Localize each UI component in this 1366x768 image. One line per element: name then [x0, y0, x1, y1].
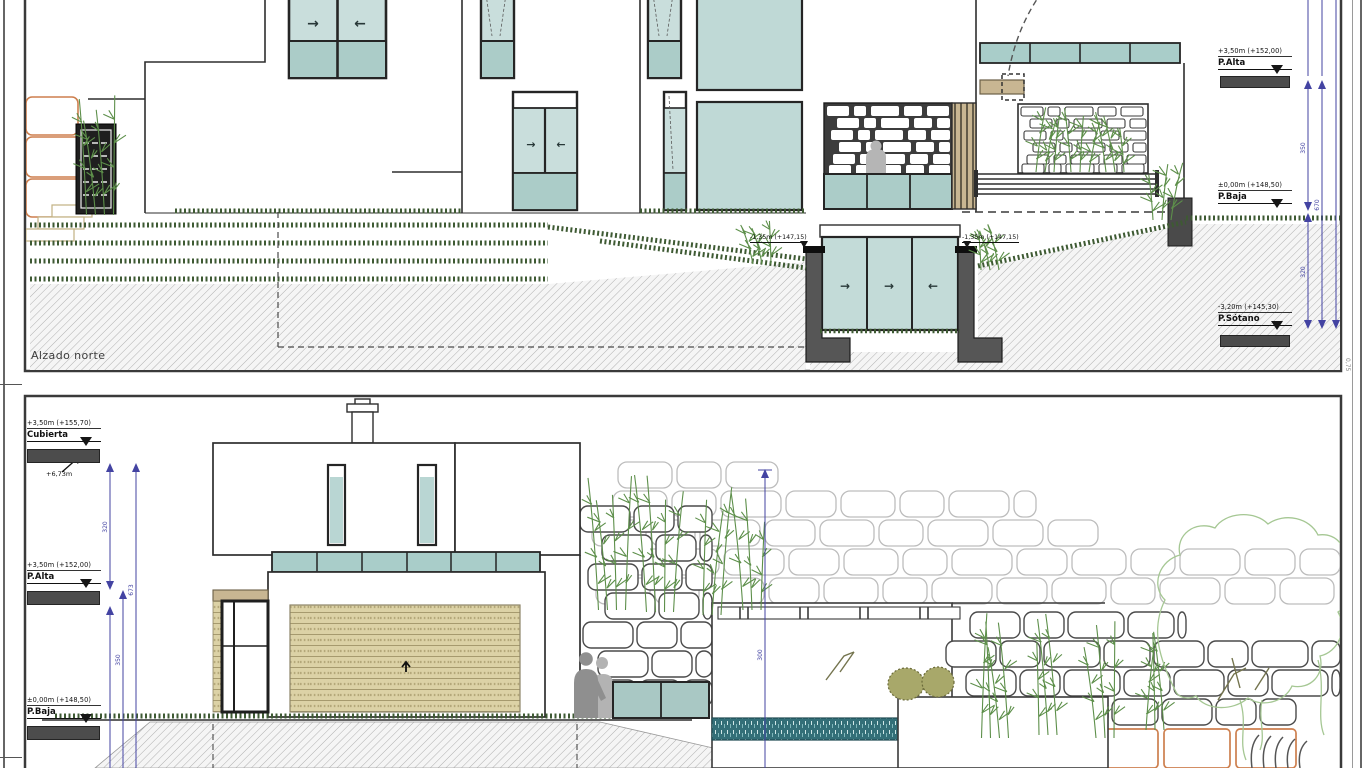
level-arrow-icon — [1271, 65, 1283, 74]
concrete-retainer-right — [1168, 198, 1192, 246]
window-large-left: → ← — [289, 0, 386, 78]
level-label-palta-bottom: +3,50m (+152,00) P.Alta — [27, 561, 101, 584]
slide-right-icon: → — [526, 138, 535, 151]
level-arrow-icon — [1271, 321, 1283, 330]
garage-door — [290, 605, 520, 712]
dim-total: 673 — [128, 584, 135, 596]
dim-basement: 320 — [1300, 266, 1307, 278]
sheet-edge-right — [1360, 0, 1362, 768]
slab-bar — [27, 726, 100, 740]
level-elevation: ±0,00m (+148,50) — [27, 696, 101, 706]
margin-tick — [0, 757, 22, 758]
slab-bar — [1220, 335, 1290, 347]
dim-total: 670 — [1314, 199, 1321, 211]
glazed-panels — [697, 0, 802, 210]
level-name: P.Sótano — [1218, 314, 1260, 324]
level-elevation: ±0,00m (+148,50) — [1218, 181, 1292, 191]
level-elevation: -3,20m (+145,30) — [1218, 303, 1292, 313]
drawing-title: Alzado norte — [31, 349, 105, 362]
slab-bar — [27, 591, 100, 605]
window-slot — [664, 92, 686, 210]
slide-left-icon: ← — [928, 279, 938, 293]
slab-bar — [1220, 76, 1290, 88]
spot-arrow-icon — [963, 241, 971, 248]
sheet-artwork: → ← → ← — [0, 0, 1366, 768]
level-arrow-icon — [80, 714, 92, 723]
window-narrow-2 — [648, 0, 681, 78]
slide-right-icon: → — [307, 16, 319, 32]
level-name: P.Baja — [27, 707, 56, 717]
level-name: P.Alta — [27, 572, 54, 582]
porch-lintel — [213, 590, 268, 601]
dim-upper: 320 — [102, 521, 109, 533]
margin-tick — [0, 384, 22, 385]
spot-level-patio-left: -1,35m (+147,15) — [750, 234, 807, 243]
wall-railing — [718, 607, 960, 619]
dim-floor-to-floor: 350 — [1300, 142, 1307, 154]
level-elevation: +3,50m (+152,00) — [1218, 47, 1292, 57]
window-narrow-1 — [481, 0, 514, 78]
height-note: +6,73m — [46, 470, 72, 478]
level-label-pbaja-bottom: ±0,00m (+148,50) P.Baja — [27, 696, 101, 719]
slab-bar — [27, 449, 100, 463]
level-label-pbaja-top: ±0,00m (+148,50) P.Baja — [1218, 181, 1292, 204]
margin-line — [1352, 0, 1353, 768]
slot-window-1 — [328, 465, 345, 545]
dim-garden-wall: 300 — [757, 649, 764, 661]
stone-wall-center — [824, 103, 976, 209]
slide-left-icon: ← — [556, 138, 565, 151]
level-label-psotano-top: -3,20m (+145,30) P.Sótano — [1218, 303, 1292, 326]
level-arrow-icon — [80, 579, 92, 588]
level-arrow-icon — [1271, 199, 1283, 208]
level-name: P.Baja — [1218, 192, 1247, 202]
wood-slat-screen — [952, 103, 976, 209]
level-elevation: +3,50m (+152,00) — [27, 561, 101, 571]
slide-right-icon: → — [840, 279, 850, 293]
level-label-cubierta: +3,50m (+155,70) Cubierta — [27, 419, 101, 442]
dim-lower: 350 — [115, 654, 122, 666]
level-arrow-icon — [80, 437, 92, 446]
spot-arrow-icon — [800, 241, 808, 248]
entry-door — [222, 601, 268, 712]
level-elevation: +3,50m (+155,70) — [27, 419, 101, 429]
slot-window-2 — [418, 465, 436, 545]
chimney — [347, 404, 378, 412]
planter-box — [898, 697, 1108, 768]
margin-note: 0,75 — [1344, 358, 1351, 371]
slide-right-icon: → — [884, 279, 894, 293]
drawing-sheet: → ← → ← — [0, 0, 1366, 768]
glass-guardrail-band — [272, 552, 540, 572]
slide-left-icon: ← — [354, 16, 366, 32]
spot-level-patio-right: -1,35m (+147,15) — [962, 234, 1019, 243]
sliding-door-upper: → ← — [513, 92, 577, 210]
level-name: Cubierta — [27, 430, 68, 440]
level-name: P.Alta — [1218, 58, 1245, 68]
level-label-palta-top: +3,50m (+152,00) P.Alta — [1218, 47, 1292, 70]
